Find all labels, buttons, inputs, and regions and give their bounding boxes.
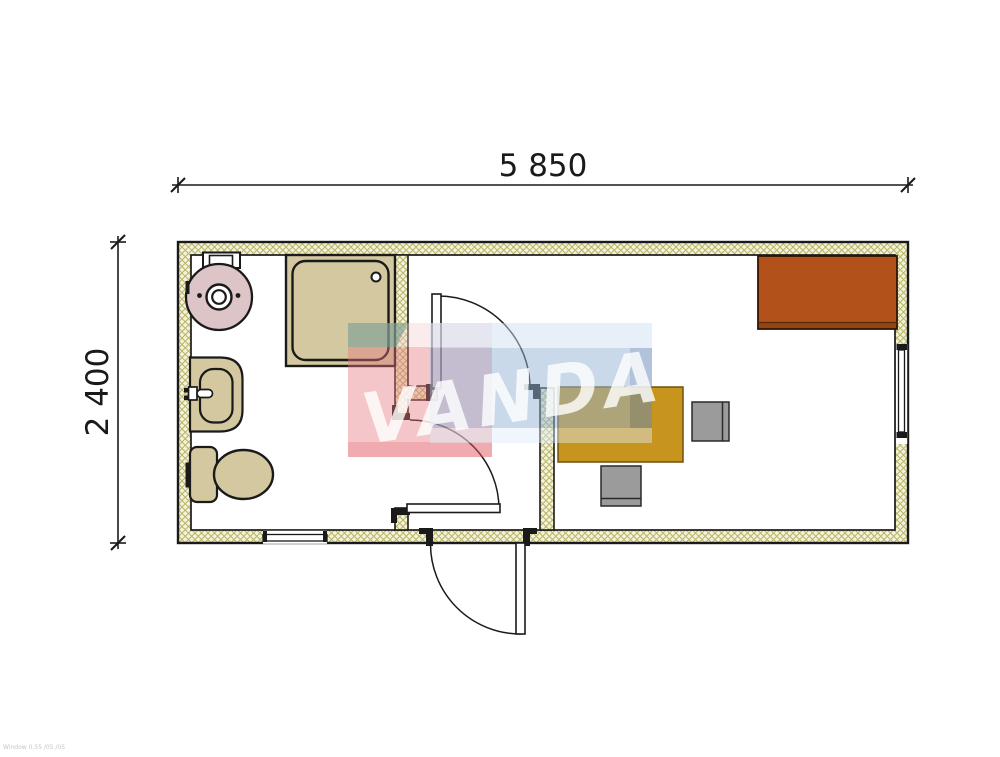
corner-note: Window 0,55 /05 /05 [3, 745, 65, 751]
wardrobe-body [758, 256, 897, 329]
bathroom-door-leaf [407, 504, 500, 513]
window-gap [896, 344, 907, 444]
toilet-bowl [214, 450, 273, 499]
office-chair-1 [692, 402, 729, 441]
window-gap [263, 531, 327, 544]
chair-seat [601, 466, 641, 506]
washbasin [184, 358, 243, 432]
office-chair-2 [601, 466, 641, 506]
toilet [186, 447, 274, 502]
entrance-door-swing-arc [431, 544, 521, 634]
vanda-watermark: VANDA [348, 323, 670, 461]
floor-plan-page: 5 850 2 400 VANDA Window 0,55 /05 /05 [0, 0, 1000, 757]
entrance-door [431, 543, 526, 634]
wardrobe-front-edge [759, 323, 896, 328]
washbasin-tap [189, 387, 198, 400]
window-office-east [896, 344, 907, 444]
window-bathroom-south [263, 531, 327, 544]
wardrobe [758, 256, 897, 329]
water-heater-bolt [197, 293, 202, 298]
dimension-width-label: 5 850 [499, 148, 588, 184]
water-heater-cap [212, 290, 226, 304]
washbasin-tap-spout [197, 390, 213, 398]
water-heater-bolt [236, 293, 241, 298]
pipe-connection [186, 281, 190, 294]
window-end-cap [897, 432, 908, 438]
window-end-cap [323, 531, 327, 542]
shower-drain [372, 273, 381, 282]
entrance-door-leaf [516, 543, 525, 634]
pipe-connection [186, 463, 191, 488]
chair-seat [692, 402, 729, 441]
window-end-cap [897, 344, 908, 350]
floor-plan-canvas: 5 850 2 400 VANDA [0, 0, 1000, 757]
window-end-cap [263, 531, 267, 542]
dimension-height-label: 2 400 [80, 348, 116, 437]
